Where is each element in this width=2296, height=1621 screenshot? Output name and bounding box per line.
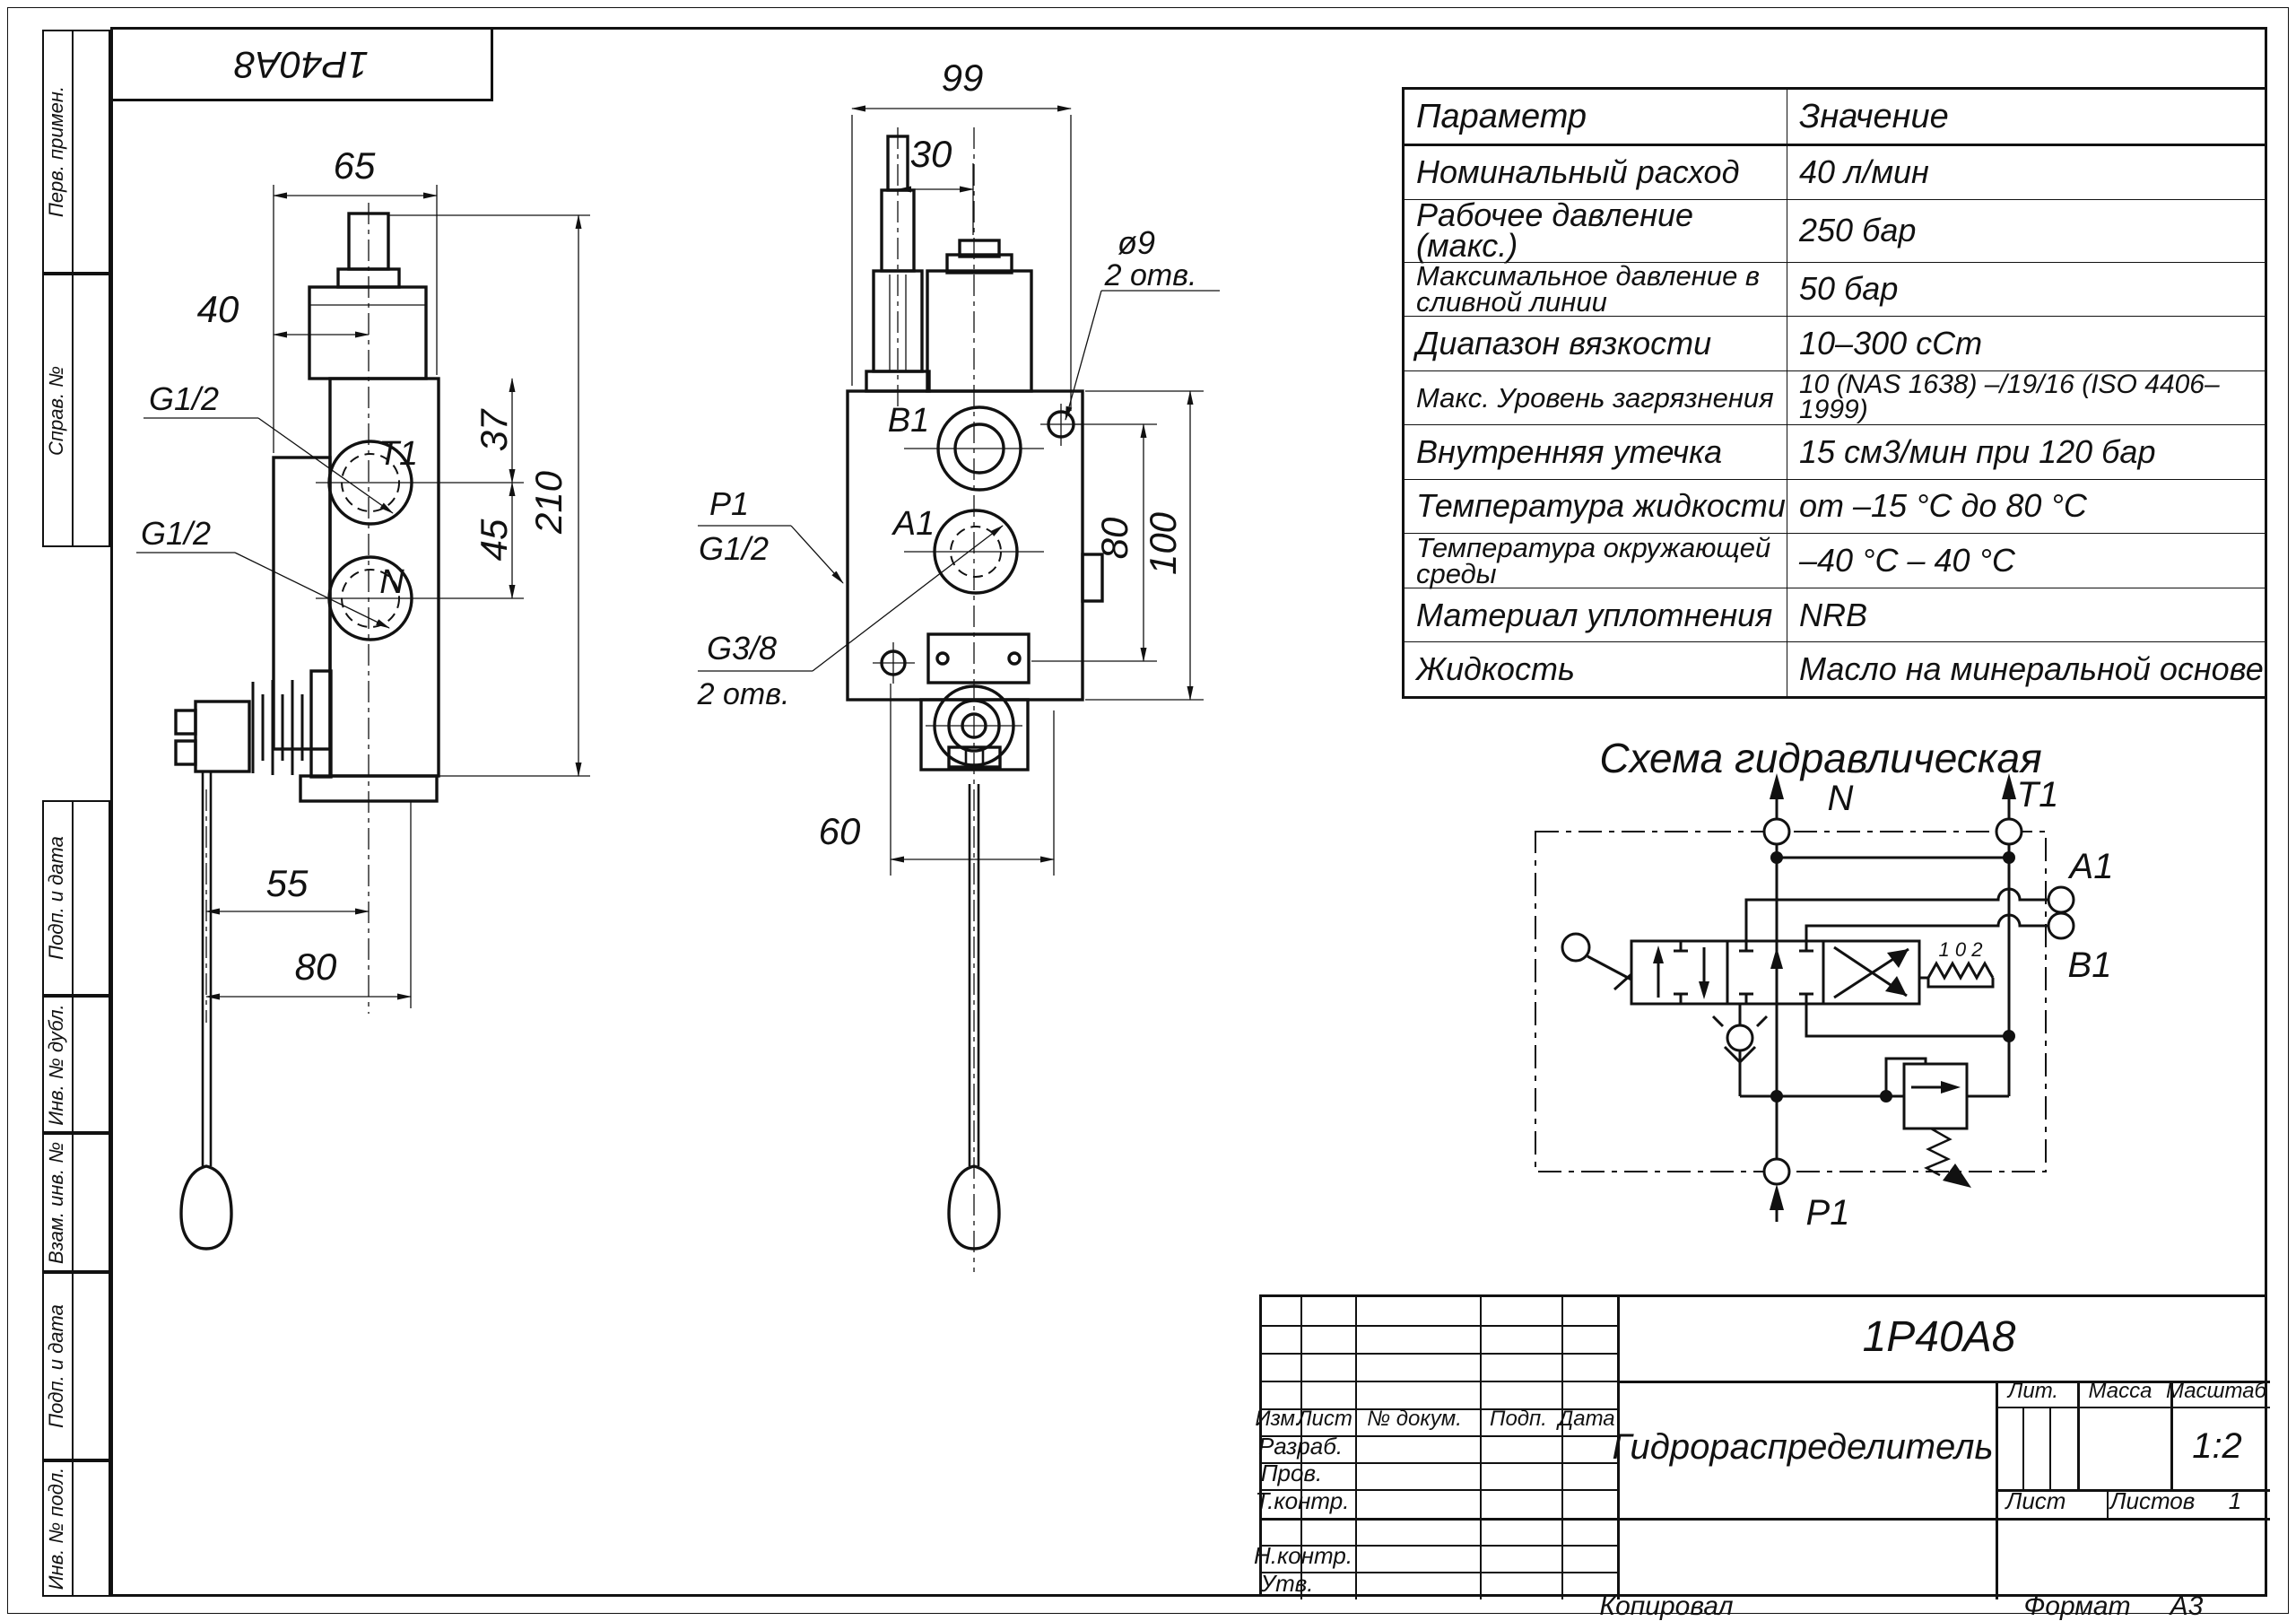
check-valve-symbol xyxy=(1727,1025,1752,1050)
port-t1-circle xyxy=(1996,819,2022,844)
footer-format-value: А3 xyxy=(2170,1593,2204,1620)
param-cell: Внутренняя утечка xyxy=(1405,425,1787,479)
param-cell: Материал уплотнения xyxy=(1405,588,1787,642)
table-row: Жидкость Масло на минеральной основе xyxy=(1405,642,2265,696)
scale-header: Масштаб xyxy=(2166,1381,2266,1402)
table-row: Температура жидкости от –15 °С до 80 °С xyxy=(1405,480,2265,535)
port-a1-circle xyxy=(2048,887,2074,912)
row-nkontr: Н.контр. xyxy=(1254,1544,1352,1567)
port-label-a1: A1 xyxy=(893,507,935,541)
value-cell: 10 (NAS 1638) –/19/16 (ISO 4406–1999) xyxy=(1787,371,2265,425)
col-header-param: Параметр xyxy=(1405,90,1787,144)
dim-label-center: 40 xyxy=(197,291,239,328)
param-cell: Диапазон вязкости xyxy=(1405,317,1787,370)
dim-label-fitting: 30 xyxy=(910,135,952,173)
lever-knob-symbol xyxy=(1562,934,1589,961)
side-view xyxy=(136,185,590,1249)
hydraulic-schematic xyxy=(1535,773,2074,1222)
table-header-row: Параметр Значение xyxy=(1405,90,2265,146)
dim-label-height: 210 xyxy=(530,471,568,534)
footer-format-label: Формат xyxy=(2023,1593,2130,1620)
value-cell: 10–300 сСт xyxy=(1787,317,2265,370)
parameters-table: Параметр Значение Номинальный расход 40 … xyxy=(1402,87,2267,699)
value-cell: 15 см3/мин при 120 бар xyxy=(1787,425,2265,479)
dim-label-lever3: 60 xyxy=(819,813,861,850)
row-utv: Утв. xyxy=(1260,1572,1313,1595)
col-data: Дата xyxy=(1558,1408,1614,1430)
schematic-port-p1: P1 xyxy=(1806,1195,1850,1231)
param-cell: Температура окружающей среды xyxy=(1405,534,1787,588)
note-label-g38: 2 отв. xyxy=(698,679,790,710)
value-cell: 40 л/мин xyxy=(1787,146,2265,200)
col-izm: Изм. xyxy=(1255,1408,1300,1430)
row-tkontr: Т.контр. xyxy=(1256,1489,1350,1512)
hole-note-label: 2 отв. xyxy=(1105,260,1197,291)
col-list: Лист xyxy=(1297,1408,1352,1430)
detent-positions-label: 1 0 2 xyxy=(1939,940,1983,960)
dim-label-height2: 100 xyxy=(1144,512,1182,575)
row-razrab: Разраб. xyxy=(1258,1434,1343,1458)
thread-label-bottom: G1/2 xyxy=(141,518,211,550)
schematic-title: Схема гидравлическая xyxy=(1599,737,2041,779)
lit-header: Лит. xyxy=(2008,1381,2058,1402)
part-name: Гидрораспределитель xyxy=(1612,1429,1993,1465)
value-cell: 250 бар xyxy=(1787,200,2265,261)
table-row: Внутренняя утечка 15 см3/мин при 120 бар xyxy=(1405,425,2265,480)
table-row: Номинальный расход 40 л/мин xyxy=(1405,146,2265,201)
table-row: Температура окружающей среды –40 °С – 40… xyxy=(1405,534,2265,588)
dim-label-width2: 99 xyxy=(942,59,984,97)
relief-valve-symbol xyxy=(1904,1064,1967,1129)
value-cell: Масло на минеральной основе xyxy=(1787,642,2265,696)
param-cell: Максимальное давление в сливной линии xyxy=(1405,263,1787,317)
value-cell: от –15 °С до 80 °С xyxy=(1787,480,2265,534)
value-cell: NRB xyxy=(1787,588,2265,642)
schematic-port-a1: A1 xyxy=(2070,849,2114,885)
row-prov: Пров. xyxy=(1261,1461,1323,1485)
port-p1-circle xyxy=(1764,1159,1789,1184)
port-label-b1: B1 xyxy=(888,404,929,438)
schematic-port-n: N xyxy=(1828,780,1854,816)
thread-label-g38: G3/8 xyxy=(707,632,777,665)
sheets-value: 1 xyxy=(2229,1489,2241,1512)
table-row: Материал уплотнения NRB xyxy=(1405,588,2265,643)
param-cell: Номинальный расход xyxy=(1405,146,1787,200)
col-header-value: Значение xyxy=(1787,90,2265,144)
port-b1-circle xyxy=(2048,913,2074,938)
schematic-port-t1: T1 xyxy=(2017,777,2059,813)
value-cell: –40 °С – 40 °С xyxy=(1787,534,2265,588)
sheet-label: Лист xyxy=(2006,1489,2066,1512)
schematic-boundary xyxy=(1535,832,2046,1172)
footer-copied: Копировал xyxy=(1599,1593,1733,1620)
table-row: Максимальное давление в сливной линии 50… xyxy=(1405,263,2265,318)
sheets-label: Листов xyxy=(2110,1489,2196,1512)
port-label-t1: T1 xyxy=(378,437,418,471)
port-n-circle xyxy=(1764,819,1789,844)
thread-label-top: G1/2 xyxy=(149,383,219,415)
param-cell: Рабочее давление (макс.) xyxy=(1405,200,1787,261)
dim-label-lever2: 80 xyxy=(295,948,337,986)
table-row: Макс. Уровень загрязнения 10 (NAS 1638) … xyxy=(1405,371,2265,426)
thread-label-p1: G1/2 xyxy=(699,533,769,565)
dim-label-width: 65 xyxy=(334,147,376,185)
drawing-sheet: 1P40A8 Перв. примен. Справ. № Подп. и да… xyxy=(0,0,2296,1621)
scale-value: 1:2 xyxy=(2192,1428,2242,1464)
value-cell: 50 бар xyxy=(1787,263,2265,317)
dim-label-port2: 45 xyxy=(475,519,513,562)
param-cell: Температура жидкости xyxy=(1405,480,1787,534)
col-podp: Подп. xyxy=(1490,1408,1547,1430)
port-label-p1: P1 xyxy=(709,488,749,520)
dim-label-holes: 80 xyxy=(1096,518,1134,560)
hole-dia-label: ø9 xyxy=(1118,227,1155,259)
dim-label-lever1: 55 xyxy=(266,865,309,902)
col-ndoc: № докум. xyxy=(1367,1408,1462,1430)
schematic-port-b1: B1 xyxy=(2068,947,2112,983)
param-cell: Жидкость xyxy=(1405,642,1787,696)
table-row: Рабочее давление (макс.) 250 бар xyxy=(1405,200,2265,262)
port-label-n: N xyxy=(379,565,404,599)
mass-header: Масса xyxy=(2089,1381,2152,1402)
table-row: Диапазон вязкости 10–300 сСт xyxy=(1405,317,2265,371)
dim-label-port1: 37 xyxy=(475,410,513,452)
param-cell: Макс. Уровень загрязнения xyxy=(1405,371,1787,425)
designation: 1P40A8 xyxy=(1863,1316,2016,1359)
